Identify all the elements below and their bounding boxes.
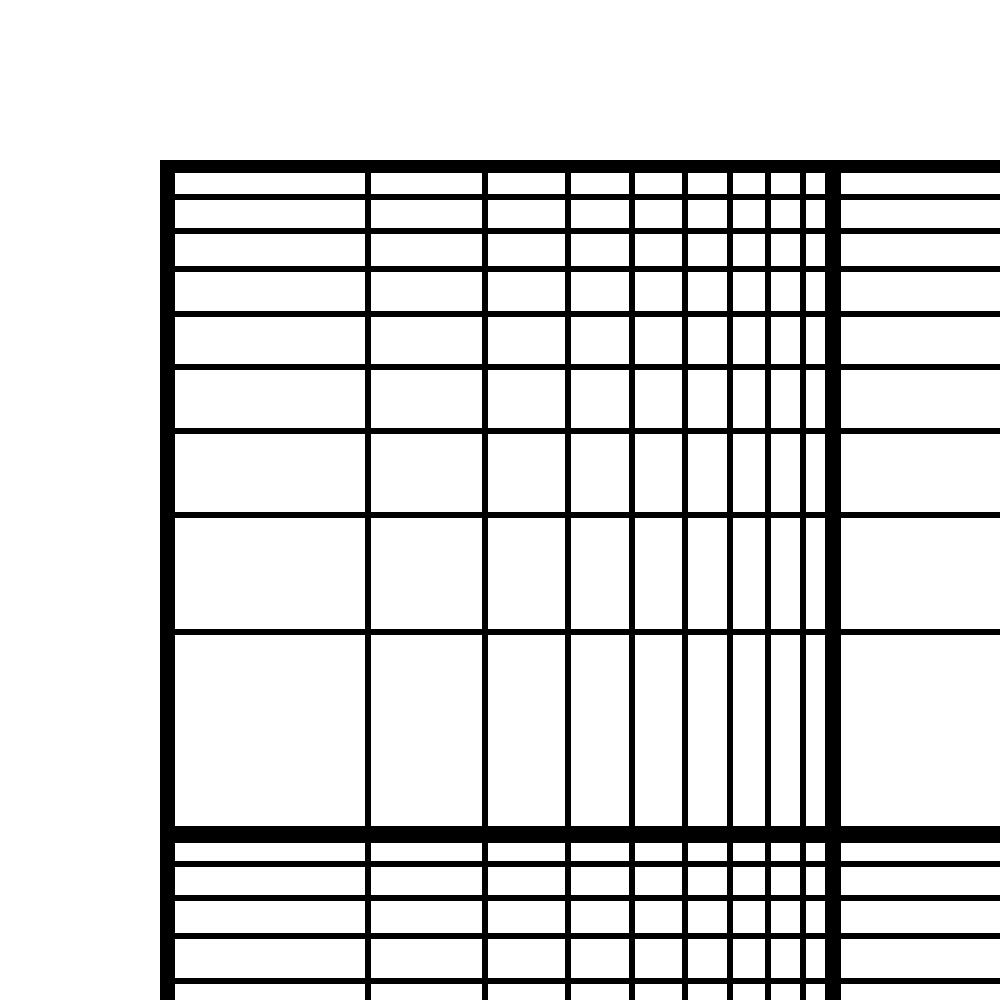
minor-horizontal-gridline <box>160 311 1000 317</box>
minor-vertical-gridline <box>482 160 488 1000</box>
minor-horizontal-gridline <box>160 895 1000 901</box>
major-horizontal-gridline <box>160 160 1000 173</box>
minor-vertical-gridline <box>800 160 806 1000</box>
minor-horizontal-gridline <box>160 861 1000 867</box>
minor-horizontal-gridline <box>160 194 1000 200</box>
minor-vertical-gridline <box>765 160 771 1000</box>
minor-horizontal-gridline <box>160 512 1000 518</box>
minor-horizontal-gridline <box>160 629 1000 635</box>
minor-horizontal-gridline <box>160 228 1000 234</box>
minor-horizontal-gridline <box>160 428 1000 434</box>
minor-horizontal-gridline <box>160 364 1000 370</box>
minor-horizontal-gridline <box>160 933 1000 939</box>
minor-vertical-gridline <box>727 160 733 1000</box>
major-vertical-gridline <box>160 160 175 1000</box>
major-vertical-gridline <box>825 160 841 1000</box>
major-horizontal-gridline <box>160 826 1000 843</box>
minor-vertical-gridline <box>682 160 688 1000</box>
minor-vertical-gridline <box>365 160 371 1000</box>
minor-horizontal-gridline <box>160 978 1000 984</box>
minor-horizontal-gridline <box>160 266 1000 272</box>
minor-vertical-gridline <box>565 160 571 1000</box>
minor-vertical-gridline <box>629 160 635 1000</box>
log-log-graph-paper <box>0 0 1000 1000</box>
